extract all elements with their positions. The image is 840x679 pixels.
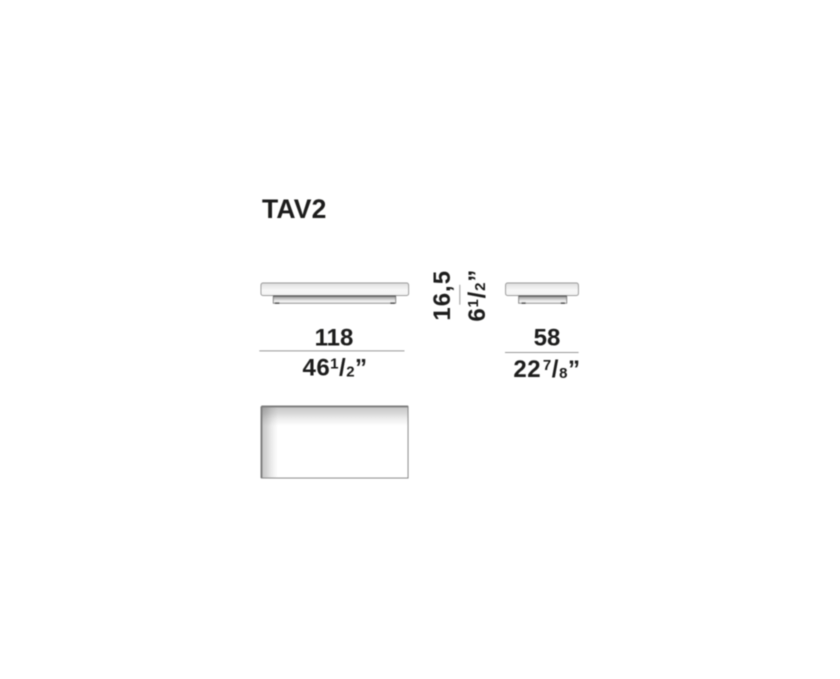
svg-text:16,5: 16,5 (429, 270, 456, 321)
svg-text:61/2”: 61/2” (464, 269, 491, 322)
svg-text:118: 118 (315, 325, 354, 352)
svg-text:227/8”: 227/8” (513, 356, 580, 383)
svg-text:TAV2: TAV2 (262, 194, 327, 224)
svg-text:58: 58 (534, 325, 561, 352)
svg-text:461/2”: 461/2” (302, 355, 367, 382)
